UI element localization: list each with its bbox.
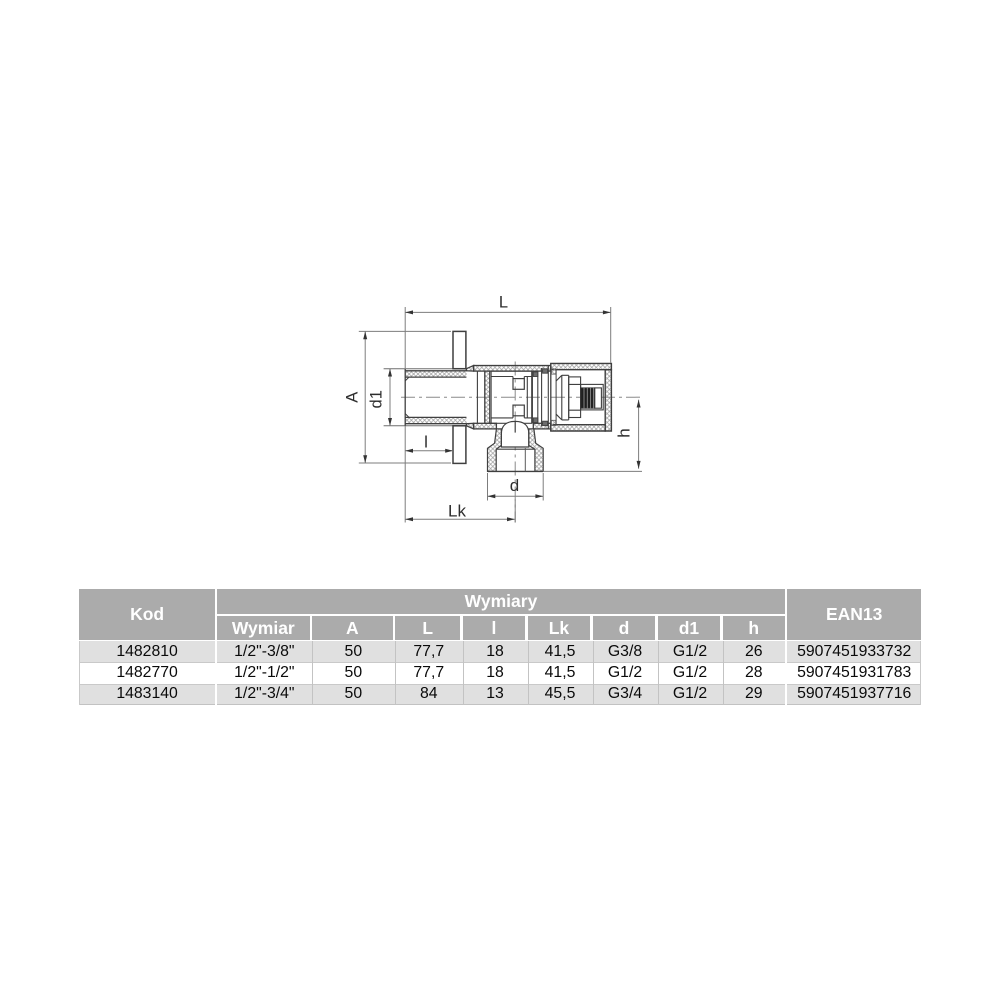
svg-text:d1: d1 bbox=[368, 390, 386, 408]
svg-text:Lk: Lk bbox=[448, 502, 466, 521]
svg-text:l: l bbox=[424, 433, 428, 452]
svg-text:A: A bbox=[344, 392, 362, 403]
svg-text:L: L bbox=[499, 294, 508, 312]
svg-text:h: h bbox=[615, 428, 634, 437]
svg-text:d: d bbox=[510, 476, 519, 495]
